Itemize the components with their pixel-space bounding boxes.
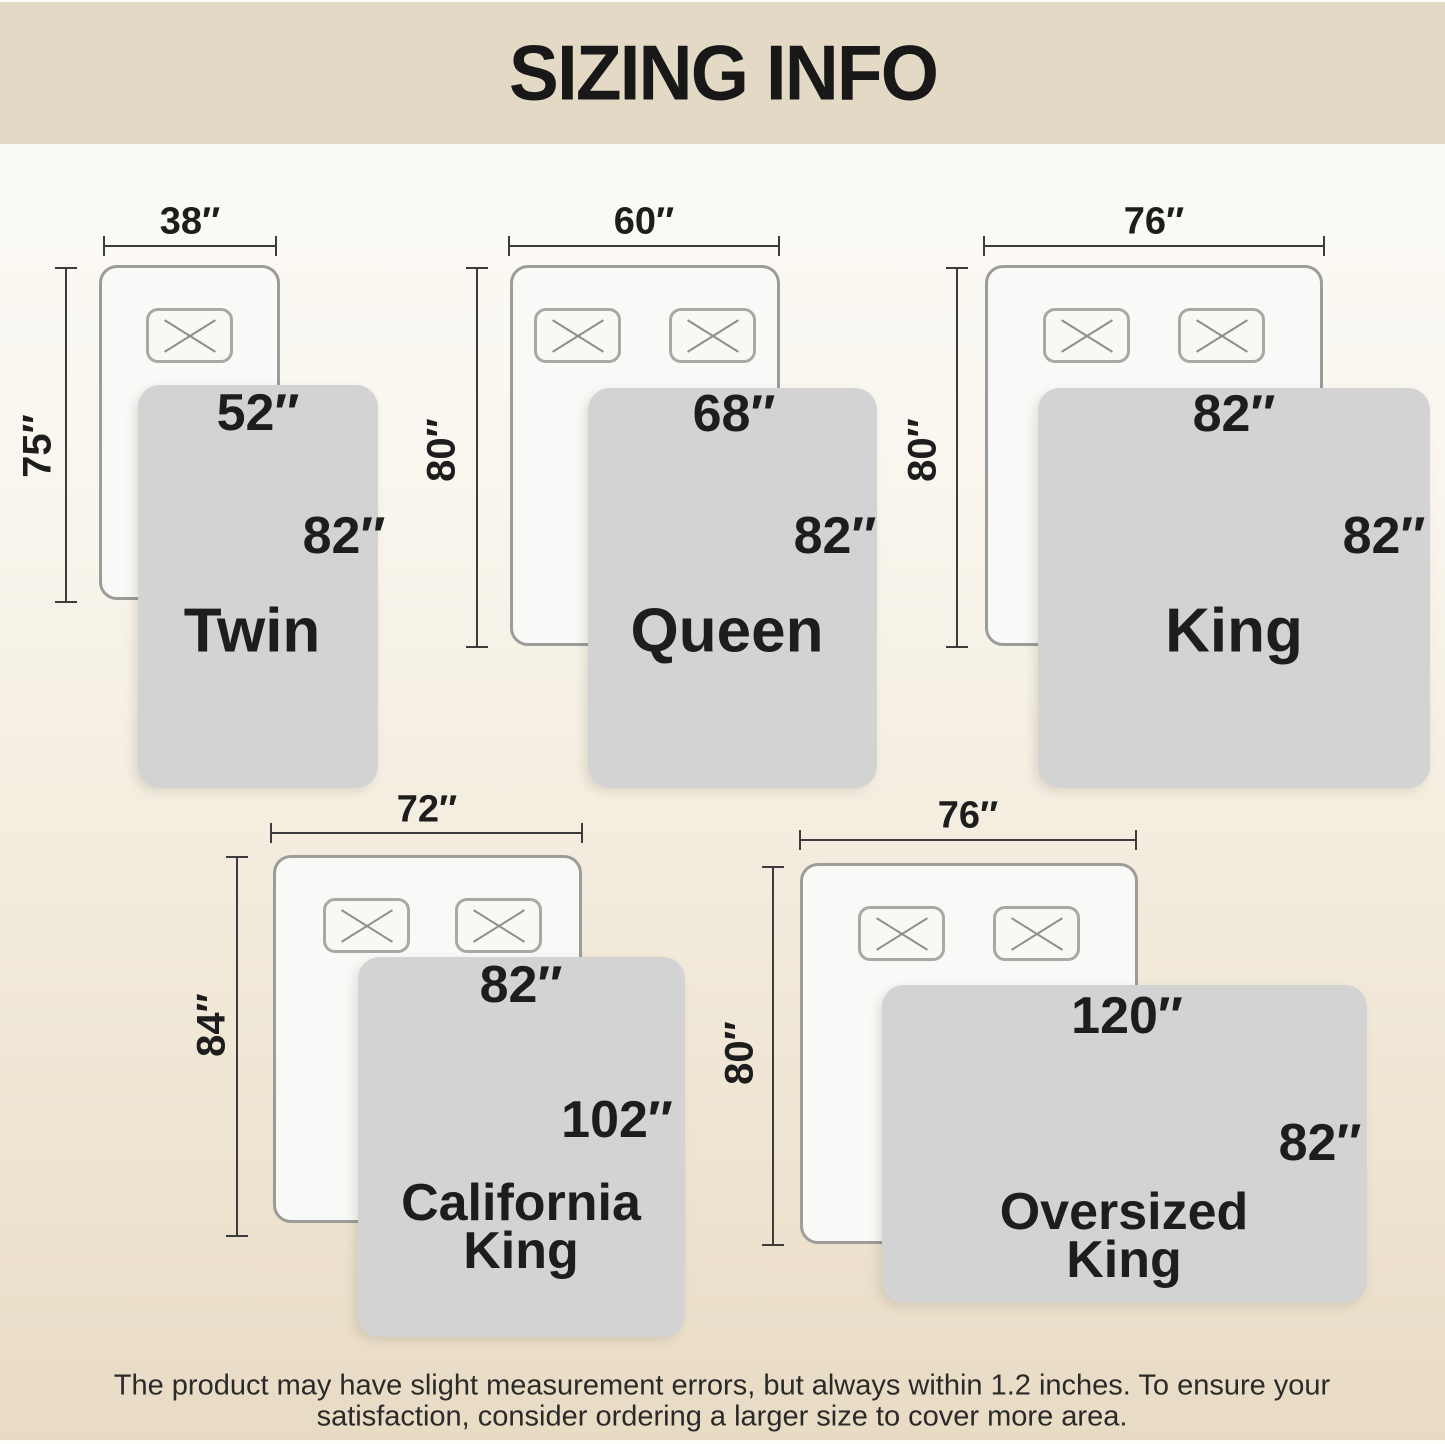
queen-width-dimension-line xyxy=(508,245,780,247)
oversized-king-width-dimension-line xyxy=(799,839,1137,841)
oversized-king-name-label: Oversized King xyxy=(1000,1188,1249,1284)
sizing-info-page: SIZING INFO 38″ 75″ 52″ 82″ Twin 60″ 80″… xyxy=(0,0,1445,1444)
california-king-width-dimension-line xyxy=(270,832,583,834)
pillow xyxy=(993,906,1080,961)
california-king-bed-width-label: 72″ xyxy=(397,789,457,832)
california-king-blanket-width-label: 82″ xyxy=(480,955,563,1015)
queen-blanket-length-label: 82″ xyxy=(794,506,877,566)
twin-bed-length-label: 75″ xyxy=(16,414,61,478)
king-blanket xyxy=(1038,388,1430,788)
queen-length-dimension-line xyxy=(476,267,478,648)
california-king-bed-length-label: 84″ xyxy=(190,993,235,1057)
king-blanket-length-label: 82″ xyxy=(1343,506,1426,566)
oversized-king-length-dimension-line xyxy=(772,866,774,1246)
pillow xyxy=(858,906,945,961)
queen-blanket-width-label: 68″ xyxy=(693,384,776,444)
oversized-king-name-line2: King xyxy=(1000,1236,1249,1284)
twin-bed-width-label: 38″ xyxy=(160,201,220,244)
pillow xyxy=(534,308,621,363)
pillow xyxy=(455,898,542,953)
twin-blanket xyxy=(138,385,378,788)
queen-bed-length-label: 80″ xyxy=(420,418,465,482)
king-bed-width-label: 76″ xyxy=(1124,201,1184,244)
twin-length-dimension-line xyxy=(65,267,67,603)
oversized-king-blanket-width-label: 120″ xyxy=(1071,986,1183,1046)
king-width-dimension-line xyxy=(983,245,1325,247)
king-name-label: King xyxy=(1165,596,1303,667)
california-king-blanket-length-label: 102″ xyxy=(561,1090,673,1150)
oversized-king-bed-length-label: 80″ xyxy=(718,1021,763,1085)
disclaimer-line-2: satisfaction, consider ordering a larger… xyxy=(0,1401,1445,1434)
pillow xyxy=(323,898,410,953)
page-title: SIZING INFO xyxy=(508,28,936,119)
queen-bed-width-label: 60″ xyxy=(614,201,674,244)
king-length-dimension-line xyxy=(956,267,958,648)
oversized-king-bed-width-label: 76″ xyxy=(938,795,998,838)
california-king-name-line2: King xyxy=(401,1227,641,1275)
oversized-king-blanket-length-label: 82″ xyxy=(1279,1113,1362,1173)
pillow xyxy=(146,308,233,363)
king-bed-length-label: 80″ xyxy=(901,418,946,482)
queen-name-label: Queen xyxy=(631,596,824,667)
pillow xyxy=(669,308,756,363)
twin-blanket-length-label: 82″ xyxy=(303,506,386,566)
king-blanket-width-label: 82″ xyxy=(1193,384,1276,444)
california-king-length-dimension-line xyxy=(236,856,238,1237)
california-king-name-line1: California xyxy=(401,1179,641,1227)
twin-width-dimension-line xyxy=(103,245,277,247)
pillow xyxy=(1178,308,1265,363)
queen-blanket xyxy=(588,388,877,788)
twin-blanket-width-label: 52″ xyxy=(217,383,300,443)
bottom-strip xyxy=(0,1440,1445,1444)
california-king-name-label: California King xyxy=(401,1179,641,1275)
pillow xyxy=(1043,308,1130,363)
oversized-king-name-line1: Oversized xyxy=(1000,1188,1249,1236)
disclaimer-line-1: The product may have slight measurement … xyxy=(0,1370,1445,1403)
twin-name-label: Twin xyxy=(184,596,321,667)
